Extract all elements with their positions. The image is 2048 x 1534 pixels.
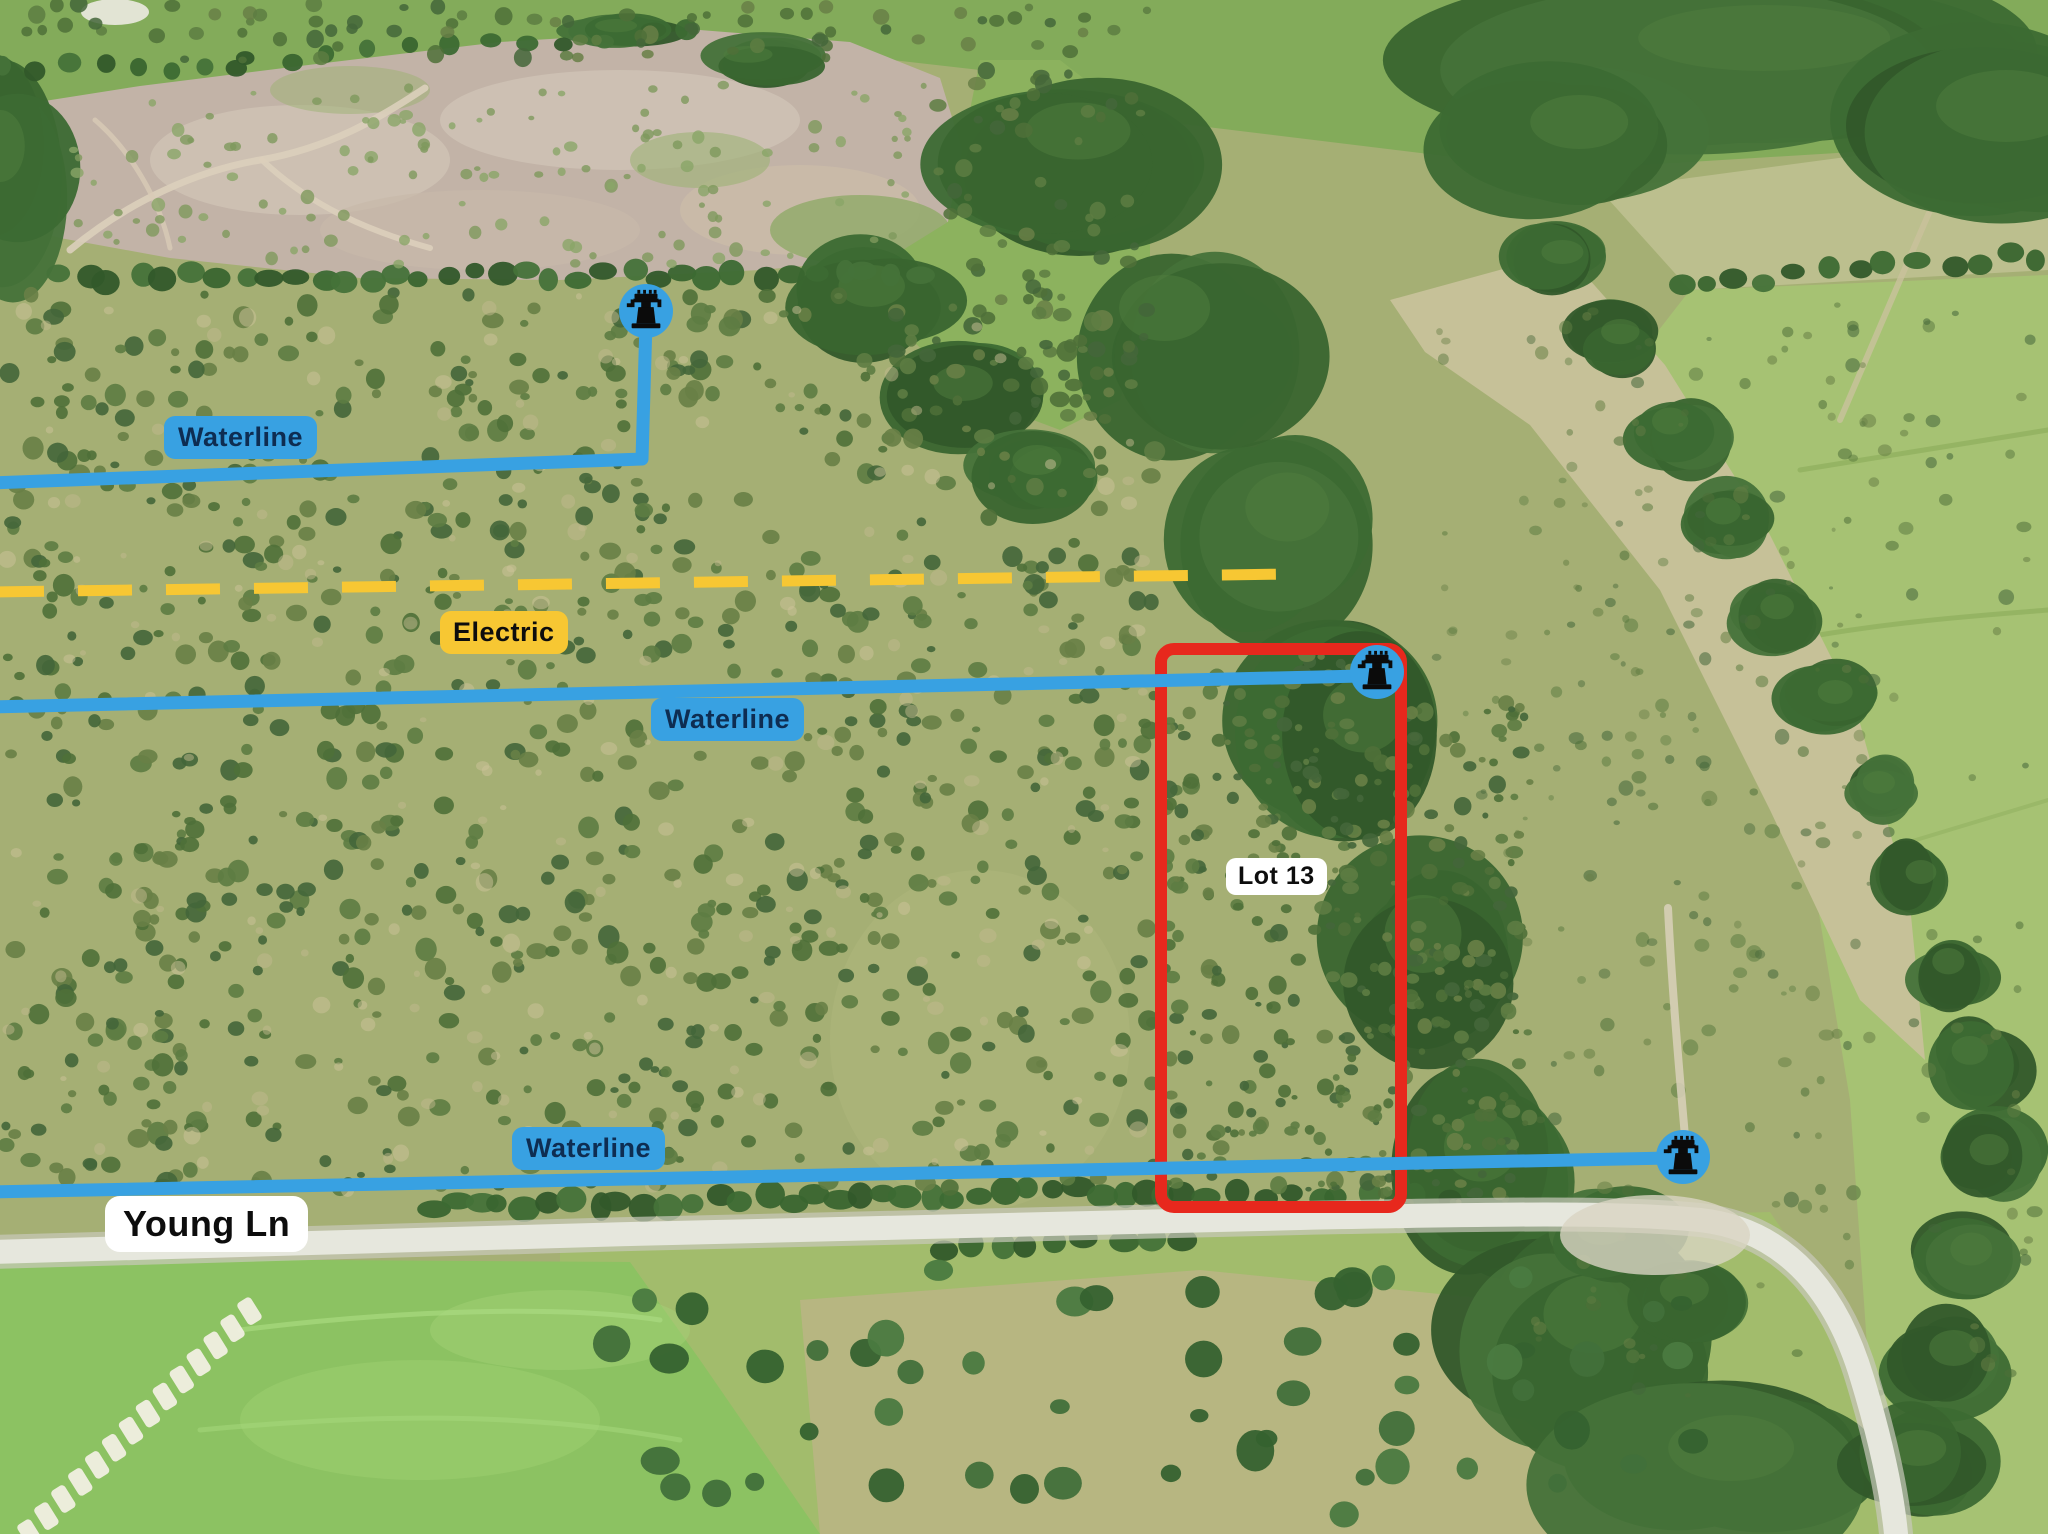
electric-line [0, 574, 1292, 592]
waterline-lower-path [0, 1158, 1670, 1192]
water-well-icon [1656, 1130, 1710, 1184]
annotation-layer [0, 0, 2048, 1534]
water-well-icon [1350, 645, 1404, 699]
waterline-lower-label: Waterline [512, 1127, 665, 1170]
lot13-label: Lot 13 [1226, 858, 1327, 895]
water-well-icon [619, 284, 673, 338]
waterline-upper-path [0, 322, 646, 483]
lot13-boundary [1161, 649, 1401, 1207]
waterline-upper-label: Waterline [164, 416, 317, 459]
waterline-middle-label: Waterline [651, 698, 804, 741]
electric-label: Electric [440, 611, 568, 654]
young-ln-label: Young Ln [105, 1196, 308, 1252]
aerial-property-map: Waterline Electric Waterline Waterline L… [0, 0, 2048, 1534]
